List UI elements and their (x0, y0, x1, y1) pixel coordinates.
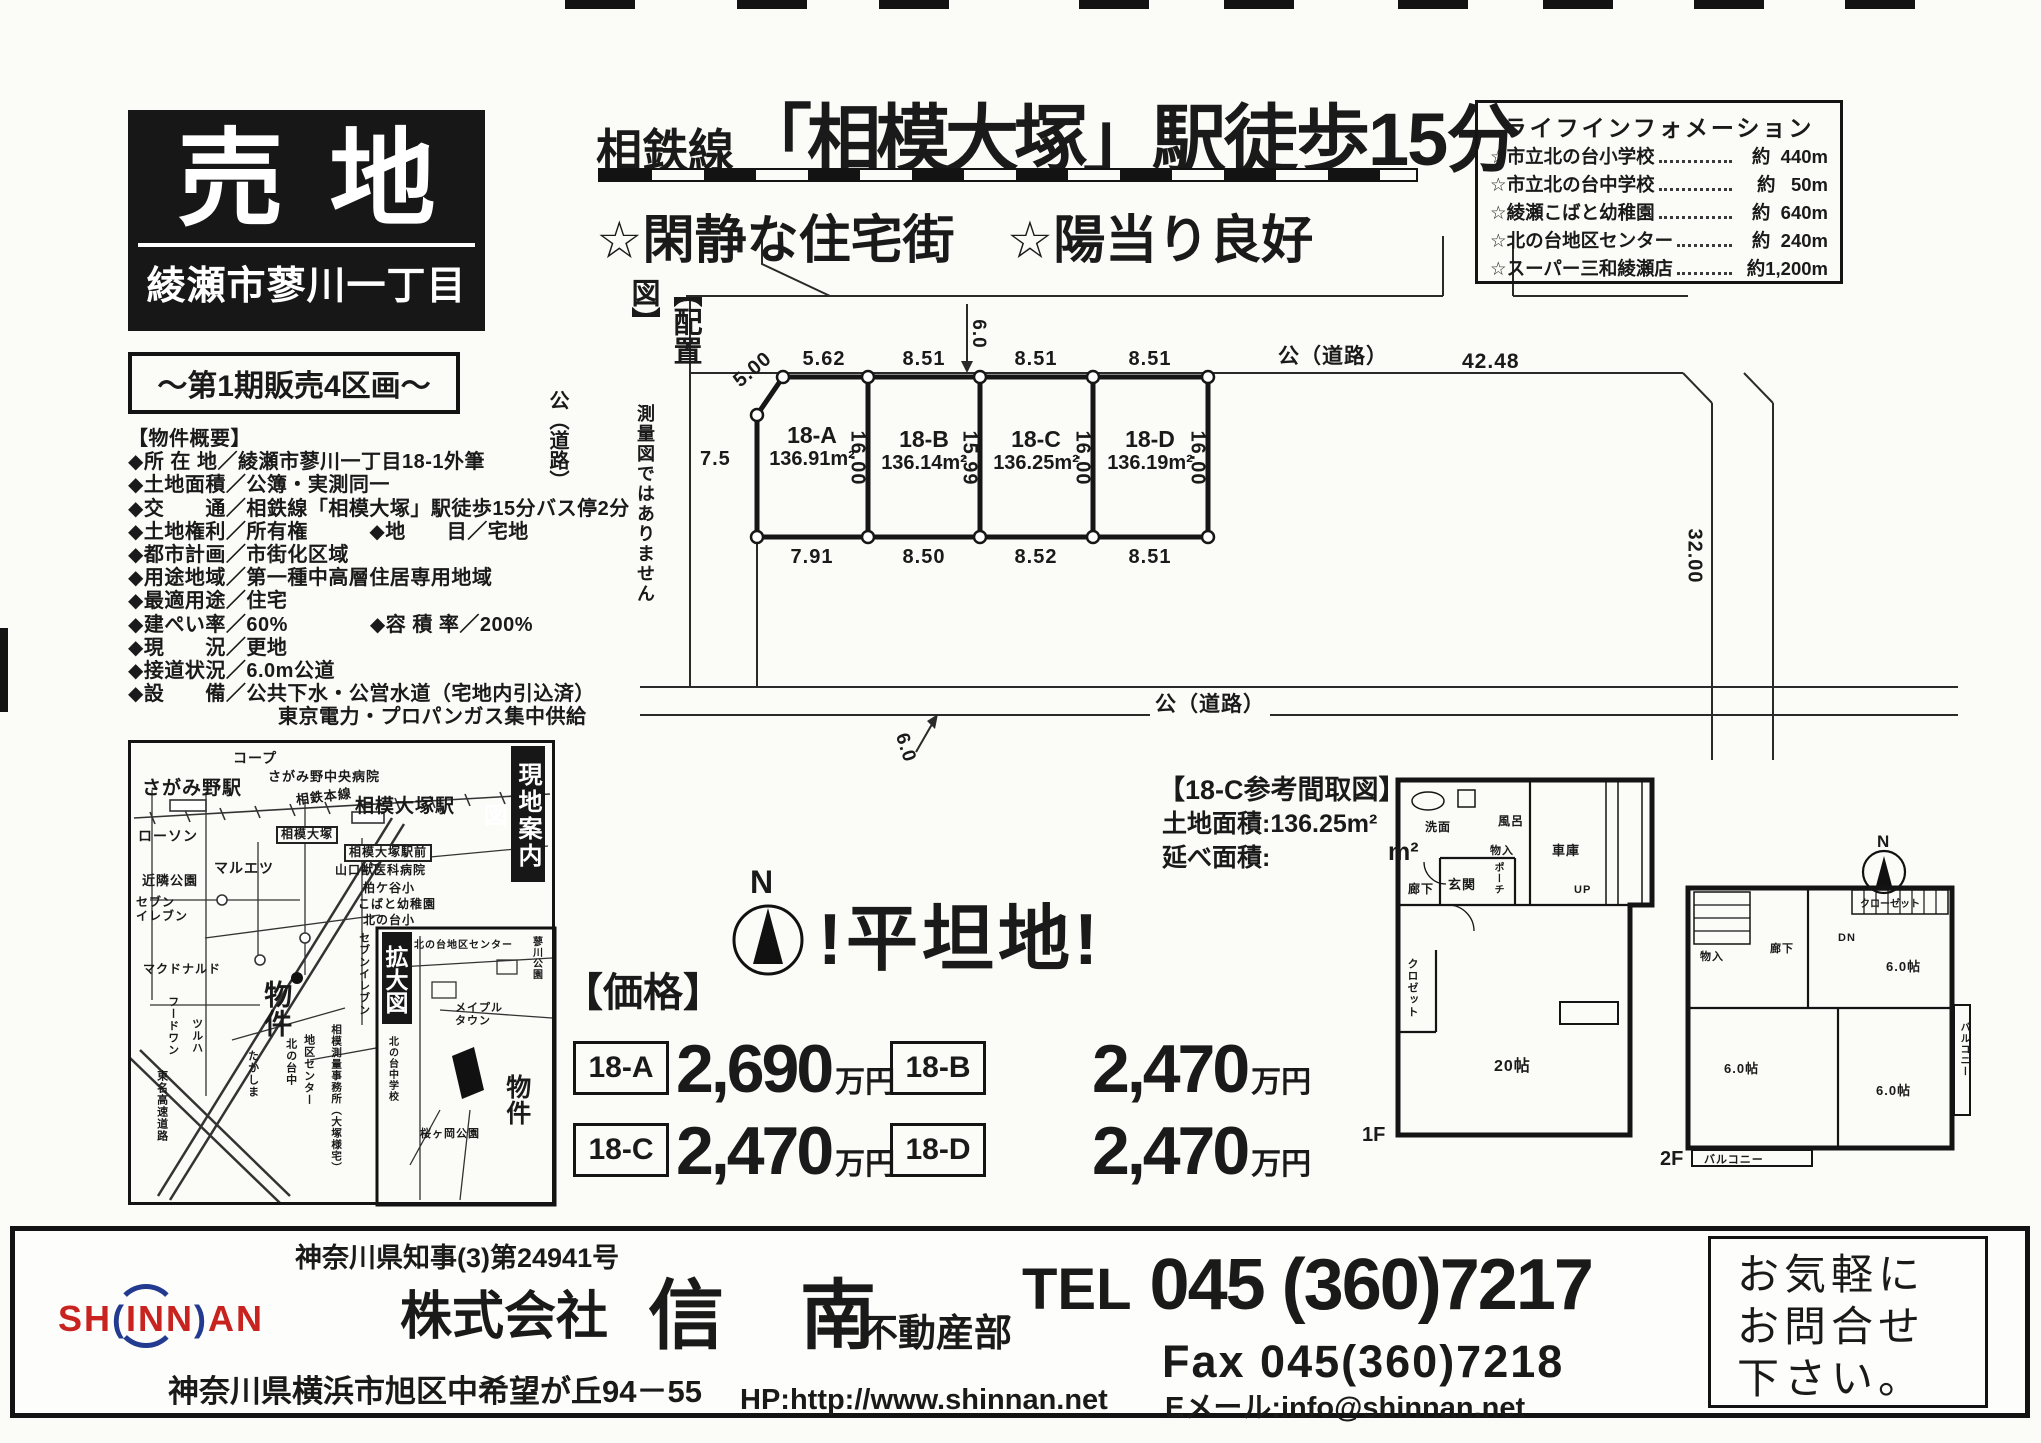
life-item-value: 約 50m (1736, 171, 1828, 199)
company-prefix: 株式会社 (400, 1274, 608, 1349)
price-value: 2,470 万円 (676, 1112, 895, 1190)
headline-underline (598, 168, 1418, 182)
road-label-top: 公（道路） (1278, 340, 1388, 370)
map-label: メイプル タウン (455, 1002, 503, 1027)
lot-id: 18-A (769, 422, 855, 448)
map-label: セブン イレブン (136, 896, 188, 924)
map-label: こばと幼稚園 (358, 898, 436, 912)
lot-area: 136.19m² (1107, 452, 1193, 475)
flat-land-note: !平坦地! (818, 880, 1102, 985)
map-label: セブンイレブン (357, 932, 370, 1030)
sale-badge-location: 綾瀬市蓼川一丁目 (128, 247, 485, 311)
map-label: マルエツ (214, 860, 274, 876)
life-item: ☆綾瀬こばと幼稚園約 640m (1478, 199, 1840, 227)
map-label: コープ (233, 750, 277, 766)
price-title: 【価格】 (563, 960, 723, 1018)
room-label: 6.0帖 (1724, 1058, 1759, 1077)
lot-area: 136.25m² (993, 452, 1079, 475)
contact-line: 下さい。 (1737, 1353, 1985, 1405)
map-label: たかしま (246, 1050, 259, 1114)
lot-dim-top: 5.62 (803, 348, 846, 371)
room-label: 物入 (1490, 842, 1514, 858)
email-address: Eメール:info@shinnan.net (1165, 1384, 1525, 1426)
price-unit: 万円 (1251, 1139, 1311, 1183)
life-item: ☆スーパー三和綾瀬店約1,200m (1478, 255, 1840, 283)
room-label: 6.0帖 (1876, 1080, 1911, 1099)
dim-top-length: 42.48 (1462, 350, 1520, 374)
lot-area: 136.14m² (881, 452, 967, 475)
dot-leader (1659, 188, 1732, 191)
license-number: 神奈川県知事(3)第24941号 (295, 1236, 619, 1275)
lot-dim-top: 8.51 (903, 348, 946, 371)
headline-sub: ☆閑静な住宅街 ☆陽当り良好 (596, 198, 1313, 273)
sale-badge-title: 売地 (128, 110, 485, 239)
map-label: 相模大塚駅前 (344, 844, 432, 862)
price-value: 2,690 万円 (676, 1030, 895, 1108)
floor-label-1f: 1F (1362, 1124, 1385, 1147)
floor-plan-2f-drawing (1688, 888, 1970, 1166)
road-label-left: 公（道路） (543, 390, 572, 580)
room-label: 6.0帖 (1886, 956, 1921, 975)
dim-left-width: 7.5 (700, 448, 731, 471)
life-item-value: 約 640m (1736, 199, 1828, 227)
dot-leader (1659, 160, 1732, 163)
lot-dim-bottom: 7.91 (791, 546, 834, 569)
logo-text: AN (208, 1298, 264, 1339)
map-label: ローソン (138, 828, 198, 844)
life-item-label: ☆綾瀬こばと幼稚園 (1490, 199, 1655, 227)
room-label: UP (1574, 884, 1591, 896)
tel-number: 045 (360)7217 (1150, 1244, 1592, 1326)
room-label: 洗面 (1425, 818, 1451, 835)
map-label: 東名高速道路 (155, 1070, 168, 1180)
site-plan-label: 【配置図】 (622, 278, 706, 402)
life-item: ☆市立北の台小学校約 440m (1478, 143, 1840, 171)
area-map-label: 現地案内図 (511, 746, 545, 882)
floor-plan-title: 【18-C参考間取図】 (1158, 768, 1406, 807)
map-label: 相模大塚 (276, 826, 338, 844)
room-label: クローゼット (1860, 895, 1920, 910)
site-plan-roads (640, 236, 1958, 760)
life-item: ☆市立北の台中学校約 50m (1478, 171, 1840, 199)
room-label: バルコニー (1956, 1022, 1971, 1102)
map-label: 北の台小 (363, 914, 415, 928)
overview-line: ◆建ぺい率／60% ◆容 積 率／200% (128, 614, 748, 637)
price-lot-code: 18-B (890, 1041, 986, 1095)
overview-line: ◆設 備／公共下水・公営水道（宅地内引込済） (128, 683, 748, 706)
sale-badge: 売地 綾瀬市蓼川一丁目 (128, 110, 485, 331)
logo-text: INN (126, 1298, 194, 1339)
fax-number: Fax 045(360)7218 (1162, 1336, 1564, 1388)
compass-n-label: N (750, 864, 773, 901)
room-label: バルコニー (1704, 1151, 1764, 1167)
life-information-title: ライフインフォメーション (1478, 109, 1840, 143)
lot: 18-A 136.91m² (769, 422, 855, 471)
dim-right-length: 32.00 (1683, 528, 1706, 583)
lot-id: 18-D (1107, 426, 1193, 452)
lot-dim-top: 8.51 (1129, 348, 1172, 371)
price-amount: 2,470 (1092, 1030, 1247, 1108)
floor-plan-total-area: 延べ面積: (1162, 838, 1270, 874)
phase-banner: ～第1期販売4区画～ (128, 352, 460, 414)
life-item-label: ☆市立北の台小学校 (1490, 143, 1655, 171)
lot-dim-top: 8.51 (1015, 348, 1058, 371)
lot-id: 18-B (881, 426, 967, 452)
map-label: 相模測量事務所（大塚様宅） (330, 1024, 342, 1176)
lot: 18-B 136.14m² (881, 426, 967, 475)
price-unit: 万円 (835, 1139, 895, 1183)
map-label: さがみ野駅 (142, 778, 242, 800)
dot-leader (1659, 216, 1732, 219)
logo-paren-open: ( (112, 1298, 126, 1339)
floor-plan-total-unit: m² (1388, 838, 1419, 867)
life-item-label: ☆スーパー三和綾瀬店 (1490, 255, 1673, 283)
compass-main (734, 906, 802, 974)
overview-line: ◆現 況／更地 (128, 637, 748, 660)
price-unit: 万円 (835, 1057, 895, 1101)
company-department: 不動産部 (860, 1302, 1012, 1357)
lot-dim-bottom: 8.52 (1015, 546, 1058, 569)
price-unit: 万円 (1251, 1057, 1311, 1101)
life-item-value: 約1,200m (1736, 255, 1828, 283)
website-url: HP:http://www.shinnan.net (740, 1384, 1108, 1417)
life-item-value: 約 440m (1736, 143, 1828, 171)
price-amount: 2,470 (1092, 1112, 1247, 1190)
room-label: 風呂 (1498, 812, 1524, 829)
map-zoom-label: 拡大図 (382, 932, 412, 1024)
map-label: 地区センター (302, 1034, 315, 1122)
map-label: 北の台中 (284, 1038, 297, 1104)
room-label: DN (1838, 932, 1856, 944)
site-plan-note: 測量図ではありません (632, 404, 658, 604)
overview-line: ◆接道状況／6.0m公道 (128, 660, 748, 683)
company-name: 信 南 (648, 1254, 876, 1364)
dim-road-width-top: 6.0 (967, 319, 989, 348)
life-item-label: ☆北の台地区センター (1490, 227, 1673, 255)
overview-line: 東京電力・プロパンガス集中供給 (128, 706, 748, 729)
floor-plan-compass-n: N (1877, 832, 1889, 852)
life-item-value: 約 240m (1736, 227, 1828, 255)
floor-plan-land-area: 土地面積:136.25m² (1162, 804, 1377, 840)
company-logo: SH(INN)AN (58, 1284, 248, 1354)
life-item: ☆北の台地区センター約 240m (1478, 227, 1840, 255)
contact-line: お問合せ (1737, 1301, 1985, 1353)
road-label-bottom: 公（道路） (1150, 688, 1270, 718)
map-label: さがみ野中央病院 (268, 770, 380, 785)
dot-leader (1677, 244, 1732, 247)
map-label: ツルハ (190, 1018, 203, 1066)
price-value: 2,470 万円 (1092, 1030, 1311, 1108)
room-label: 物入 (1700, 948, 1724, 964)
room-label: 車庫 (1552, 840, 1580, 859)
lot: 18-D 136.19m² (1107, 426, 1193, 475)
lot-dim-bottom: 8.50 (903, 546, 946, 569)
room-label: クロゼット (1404, 958, 1420, 1036)
map-label: 柏ケ谷小 (363, 882, 415, 896)
map-label: 近隣公園 (142, 874, 198, 889)
phone: TEL 045 (360)7217 (1022, 1244, 1592, 1326)
floor-label-2f: 2F (1660, 1148, 1683, 1171)
map-label: 相模大塚駅 (355, 796, 455, 818)
dot-leader (1677, 272, 1732, 275)
room-label: ポーチ (1490, 862, 1505, 902)
price-amount: 2,690 (676, 1030, 831, 1108)
map-label: 桜ヶ岡公園 (420, 1128, 480, 1141)
map-label: 北の台中学校 (386, 1036, 398, 1124)
room-label: 玄関 (1448, 874, 1476, 893)
tel-label: TEL (1022, 1256, 1132, 1323)
room-label: 廊下 (1408, 880, 1434, 897)
map-label: マクドナルド (143, 963, 221, 977)
room-label: 廊下 (1770, 940, 1794, 956)
room-label: 20帖 (1494, 1052, 1531, 1076)
map-label: 蓼川公園 (530, 936, 542, 988)
price-lot-code: 18-A (573, 1041, 669, 1095)
contact-line: お気軽に (1737, 1249, 1985, 1301)
logo-paren-close: ) (194, 1298, 208, 1339)
flyer-page: 売地 綾瀬市蓼川一丁目 ～第1期販売4区画～ 【物件概要】 ◆所 在 地／綾瀬市… (0, 0, 2041, 1443)
map-label: 北の台地区センター (414, 940, 513, 952)
contact-box: お気軽に お問合せ 下さい。 (1708, 1236, 1988, 1408)
life-item-label: ☆市立北の台中学校 (1490, 171, 1655, 199)
price-lot-code: 18-C (573, 1123, 669, 1177)
price-lot-code: 18-D (890, 1123, 986, 1177)
logo-text: SH (58, 1298, 112, 1339)
company-address: 神奈川県横浜市旭区中希望が丘94－55 (168, 1366, 702, 1411)
price-amount: 2,470 (676, 1112, 831, 1190)
price-value: 2,470 万円 (1092, 1112, 1311, 1190)
lot-dim-bottom: 8.51 (1129, 546, 1172, 569)
life-information: ライフインフォメーション ☆市立北の台小学校約 440m ☆市立北の台中学校約 … (1475, 100, 1843, 284)
lot-id: 18-C (993, 426, 1079, 452)
lot: 18-C 136.25m² (993, 426, 1079, 475)
lot-area: 136.91m² (769, 448, 855, 471)
map-label-property: 物件 (502, 1074, 531, 1136)
map-label: 山口獣医科病院 (335, 864, 426, 878)
map-label: フードワン (166, 996, 179, 1070)
